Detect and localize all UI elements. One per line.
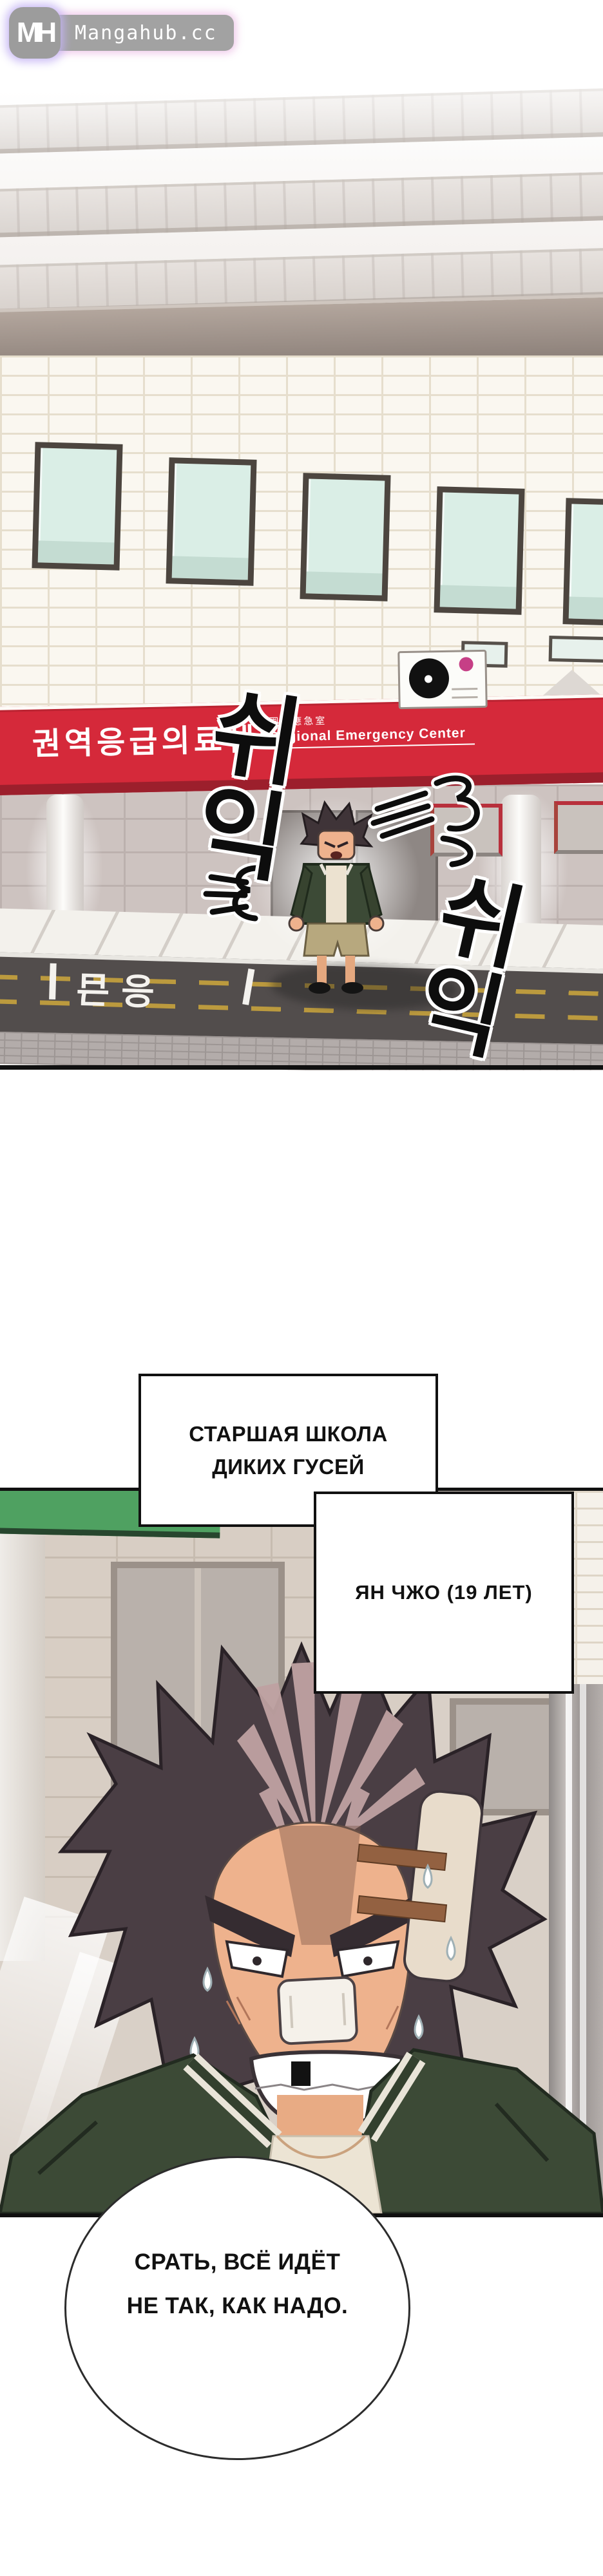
mini-shoe xyxy=(341,982,363,994)
speech-line-1: СРАТЬ, ВСЁ ИДЁТ xyxy=(135,2240,341,2284)
air-conditioner-unit xyxy=(397,650,488,709)
mini-mouth xyxy=(330,851,342,859)
site-logo-monogram: MH xyxy=(17,17,53,49)
road-marking-bracket xyxy=(242,969,254,1005)
speech-line-2: НЕ ТАК, КАК НАДО. xyxy=(127,2284,349,2328)
mini-shirt xyxy=(326,866,347,923)
nose-bandage xyxy=(278,1977,358,2044)
manga-page: 권역응급의료센터 圈域應急室 Regional Emergency Center… xyxy=(0,0,603,2576)
road-marking-text: 응급 xyxy=(64,965,155,1019)
caption-character-text: ЯН ЧЖО (19 ЛЕТ) xyxy=(355,1581,533,1604)
caption-box-character-name: ЯН ЧЖО (19 ЛЕТ) xyxy=(314,1492,574,1694)
breath-puff-right-icon xyxy=(361,766,496,876)
site-logo-domain: Mangahub.cc xyxy=(75,22,217,44)
window xyxy=(434,486,524,614)
window xyxy=(166,457,256,585)
mini-leg xyxy=(345,956,355,984)
mini-shorts xyxy=(304,923,368,956)
speech-bubble: СРАТЬ, ВСЁ ИДЁТ НЕ ТАК, КАК НАДО. xyxy=(64,2156,410,2460)
small-window xyxy=(549,636,603,663)
ac-vent-lines xyxy=(452,688,477,699)
panel-hospital-street: 권역응급의료센터 圈域應急室 Regional Emergency Center… xyxy=(0,0,603,1070)
ac-brand-dot xyxy=(459,657,473,671)
mini-shoe xyxy=(309,982,330,994)
site-logo-watermark: MH Mangahub.cc xyxy=(9,6,234,59)
mini-fist-right xyxy=(369,916,383,931)
site-logo-icon: MH xyxy=(9,7,61,59)
site-logo-bar: Mangahub.cc xyxy=(53,15,234,51)
mini-leg xyxy=(317,956,327,984)
red-framed-window xyxy=(554,801,603,854)
window xyxy=(562,498,603,626)
panel1-bottom-border xyxy=(0,1065,603,1070)
window xyxy=(32,442,122,570)
caption-school-text: СТАРШАЯ ШКОЛА ДИКИХ ГУСЕЙ xyxy=(167,1417,410,1483)
window xyxy=(300,473,390,601)
road-marking-bracket xyxy=(49,963,57,999)
ac-fan-icon xyxy=(408,658,449,699)
